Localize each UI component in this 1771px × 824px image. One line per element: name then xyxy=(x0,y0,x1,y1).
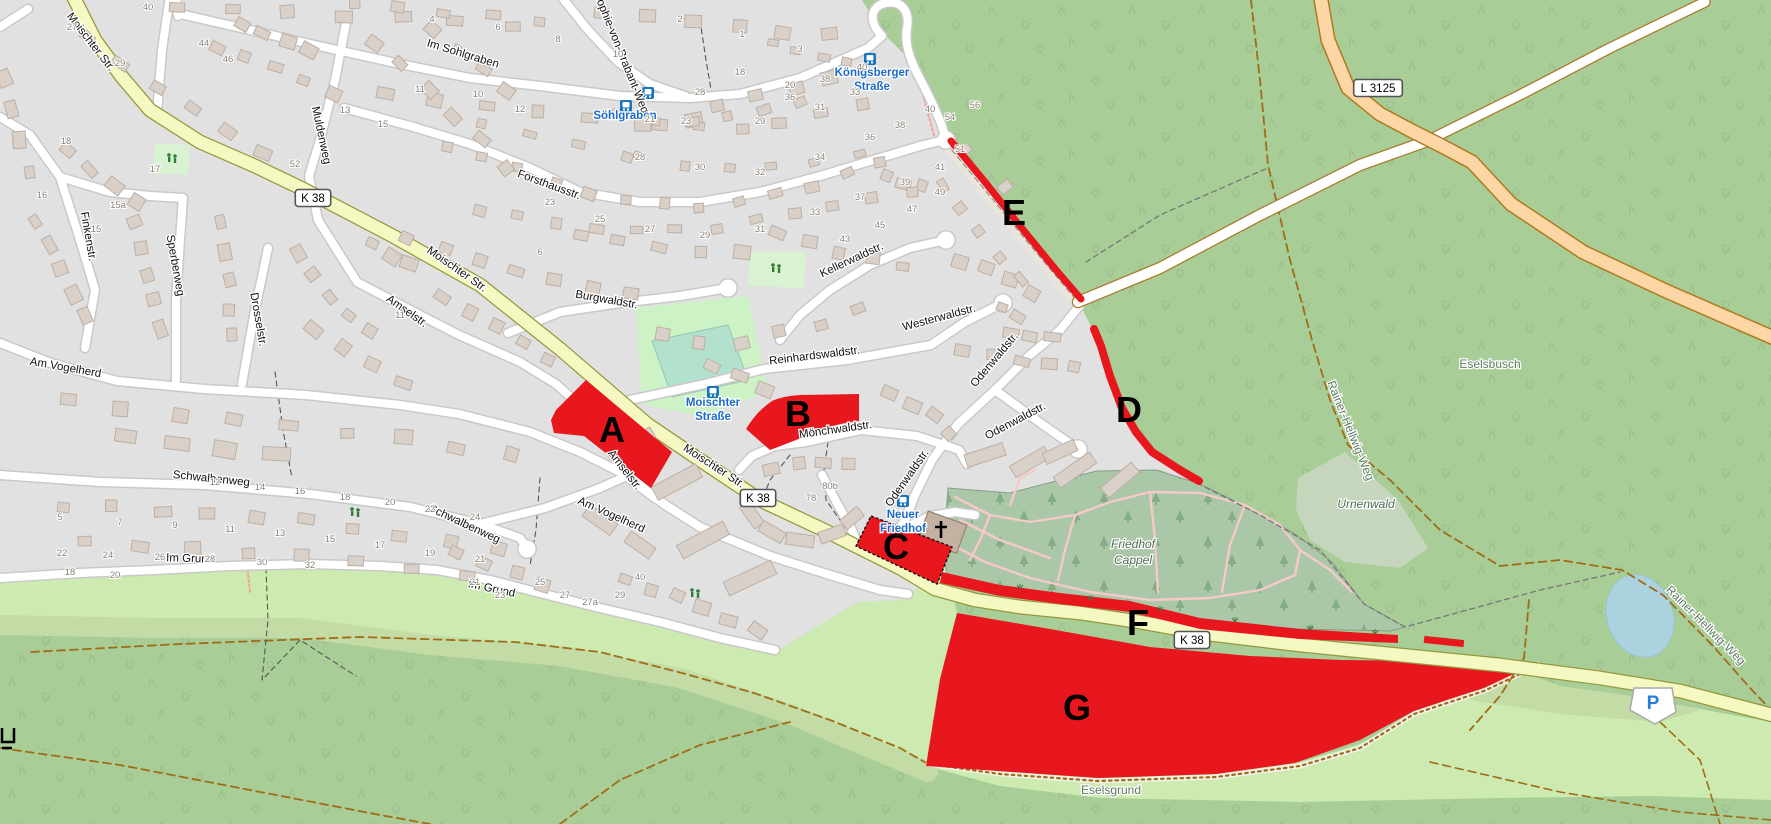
svg-text:13: 13 xyxy=(340,105,351,116)
svg-text:25: 25 xyxy=(535,577,546,588)
svg-text:10: 10 xyxy=(473,89,484,100)
svg-text:8: 8 xyxy=(555,34,560,45)
svg-text:29: 29 xyxy=(115,58,126,69)
svg-text:16: 16 xyxy=(295,486,306,497)
svg-text:28: 28 xyxy=(205,554,216,565)
svg-text:B: B xyxy=(785,393,811,434)
svg-text:E: E xyxy=(1002,192,1026,233)
svg-text:G: G xyxy=(1063,687,1091,728)
svg-text:18: 18 xyxy=(340,492,351,503)
svg-text:27: 27 xyxy=(67,22,78,33)
svg-text:16: 16 xyxy=(37,190,48,201)
svg-text:32: 32 xyxy=(305,560,316,571)
svg-text:5: 5 xyxy=(57,512,62,523)
svg-text:80b: 80b xyxy=(822,481,838,492)
svg-text:40: 40 xyxy=(925,104,936,115)
svg-text:15: 15 xyxy=(325,534,336,545)
svg-text:36: 36 xyxy=(785,92,796,103)
svg-text:33: 33 xyxy=(850,87,861,98)
svg-text:12: 12 xyxy=(210,477,221,488)
svg-text:31: 31 xyxy=(815,102,826,113)
svg-text:40: 40 xyxy=(635,572,646,583)
svg-text:11: 11 xyxy=(395,310,405,321)
svg-text:33: 33 xyxy=(810,207,821,218)
svg-text:17: 17 xyxy=(375,540,386,551)
svg-text:Cappel: Cappel xyxy=(1114,553,1152,567)
svg-text:29: 29 xyxy=(755,116,766,127)
svg-text:Straße: Straße xyxy=(695,411,731,423)
svg-text:51: 51 xyxy=(955,144,966,155)
svg-text:56: 56 xyxy=(970,100,981,111)
svg-text:F: F xyxy=(1127,602,1149,643)
svg-text:28: 28 xyxy=(635,152,646,163)
svg-text:20: 20 xyxy=(785,80,796,91)
svg-text:9: 9 xyxy=(172,520,177,531)
svg-text:25: 25 xyxy=(595,214,606,225)
svg-text:49: 49 xyxy=(935,187,946,198)
svg-text:4: 4 xyxy=(429,14,434,25)
svg-text:31: 31 xyxy=(755,224,766,235)
svg-text:19: 19 xyxy=(425,548,436,559)
svg-text:32: 32 xyxy=(755,167,766,178)
svg-text:2: 2 xyxy=(677,14,682,25)
svg-text:15: 15 xyxy=(91,224,102,235)
svg-text:18: 18 xyxy=(61,136,72,147)
svg-text:7: 7 xyxy=(117,517,122,528)
svg-text:38: 38 xyxy=(820,74,831,85)
svg-text:6: 6 xyxy=(495,22,500,33)
svg-text:23: 23 xyxy=(545,197,556,208)
svg-text:28: 28 xyxy=(695,87,706,98)
svg-text:Friedhof: Friedhof xyxy=(1111,537,1157,551)
svg-text:36: 36 xyxy=(865,132,876,143)
svg-text:24: 24 xyxy=(470,512,481,523)
svg-text:P: P xyxy=(1647,693,1660,714)
svg-text:23: 23 xyxy=(681,116,692,127)
svg-text:Eselsgrund: Eselsgrund xyxy=(1081,783,1141,797)
svg-text:Moischter: Moischter xyxy=(686,397,741,409)
svg-text:K 38: K 38 xyxy=(301,193,325,205)
svg-text:45: 45 xyxy=(875,220,886,231)
svg-text:17: 17 xyxy=(150,164,161,175)
svg-text:40: 40 xyxy=(143,2,154,13)
svg-text:20: 20 xyxy=(110,570,121,581)
svg-text:26: 26 xyxy=(155,552,166,563)
svg-text:10: 10 xyxy=(613,49,624,60)
svg-text:3: 3 xyxy=(797,44,802,55)
svg-text:30: 30 xyxy=(257,557,268,568)
svg-text:43: 43 xyxy=(840,234,851,245)
svg-text:29: 29 xyxy=(700,230,711,241)
svg-text:1: 1 xyxy=(739,29,744,40)
svg-text:22: 22 xyxy=(57,548,68,559)
svg-text:Neuer: Neuer xyxy=(887,509,920,521)
svg-text:15: 15 xyxy=(378,119,389,130)
svg-text:15a: 15a xyxy=(110,200,127,211)
svg-text:23: 23 xyxy=(495,590,506,601)
svg-text:29: 29 xyxy=(615,590,626,601)
svg-text:11: 11 xyxy=(415,84,425,95)
svg-text:30: 30 xyxy=(695,162,706,173)
svg-text:20: 20 xyxy=(385,497,396,508)
svg-text:52: 52 xyxy=(290,159,301,170)
svg-text:L 3125: L 3125 xyxy=(1361,83,1396,95)
svg-text:13: 13 xyxy=(275,528,286,539)
svg-text:27: 27 xyxy=(645,224,656,235)
svg-text:11: 11 xyxy=(225,524,235,535)
svg-text:40: 40 xyxy=(857,62,868,73)
svg-text:47: 47 xyxy=(907,204,918,215)
svg-text:54: 54 xyxy=(945,112,956,123)
svg-text:24: 24 xyxy=(103,550,114,561)
svg-text:38: 38 xyxy=(895,120,906,131)
svg-text:18: 18 xyxy=(65,567,76,578)
svg-text:27a: 27a xyxy=(582,597,599,608)
svg-text:41: 41 xyxy=(935,162,946,173)
svg-text:Urnenwald: Urnenwald xyxy=(1337,497,1395,511)
svg-text:46: 46 xyxy=(223,54,234,65)
svg-text:21: 21 xyxy=(475,554,486,565)
svg-text:K 38: K 38 xyxy=(746,493,770,505)
svg-text:14: 14 xyxy=(255,482,266,493)
svg-text:44: 44 xyxy=(199,38,210,49)
svg-text:18: 18 xyxy=(735,67,746,78)
svg-text:C: C xyxy=(883,526,909,567)
svg-text:21: 21 xyxy=(645,114,656,125)
svg-text:D: D xyxy=(1116,389,1142,430)
svg-text:34: 34 xyxy=(815,152,826,163)
svg-text:78: 78 xyxy=(806,493,817,504)
svg-text:Königsberger: Königsberger xyxy=(835,67,910,79)
svg-text:22: 22 xyxy=(425,504,436,515)
svg-text:12: 12 xyxy=(515,104,526,115)
svg-text:A: A xyxy=(599,409,625,450)
svg-text:K 38: K 38 xyxy=(1180,635,1204,647)
svg-text:39: 39 xyxy=(900,177,911,188)
svg-text:6: 6 xyxy=(537,247,542,258)
svg-text:Eselsbusch: Eselsbusch xyxy=(1459,357,1520,371)
svg-text:27: 27 xyxy=(560,590,571,601)
svg-text:21: 21 xyxy=(470,577,481,588)
svg-text:37: 37 xyxy=(855,192,866,203)
